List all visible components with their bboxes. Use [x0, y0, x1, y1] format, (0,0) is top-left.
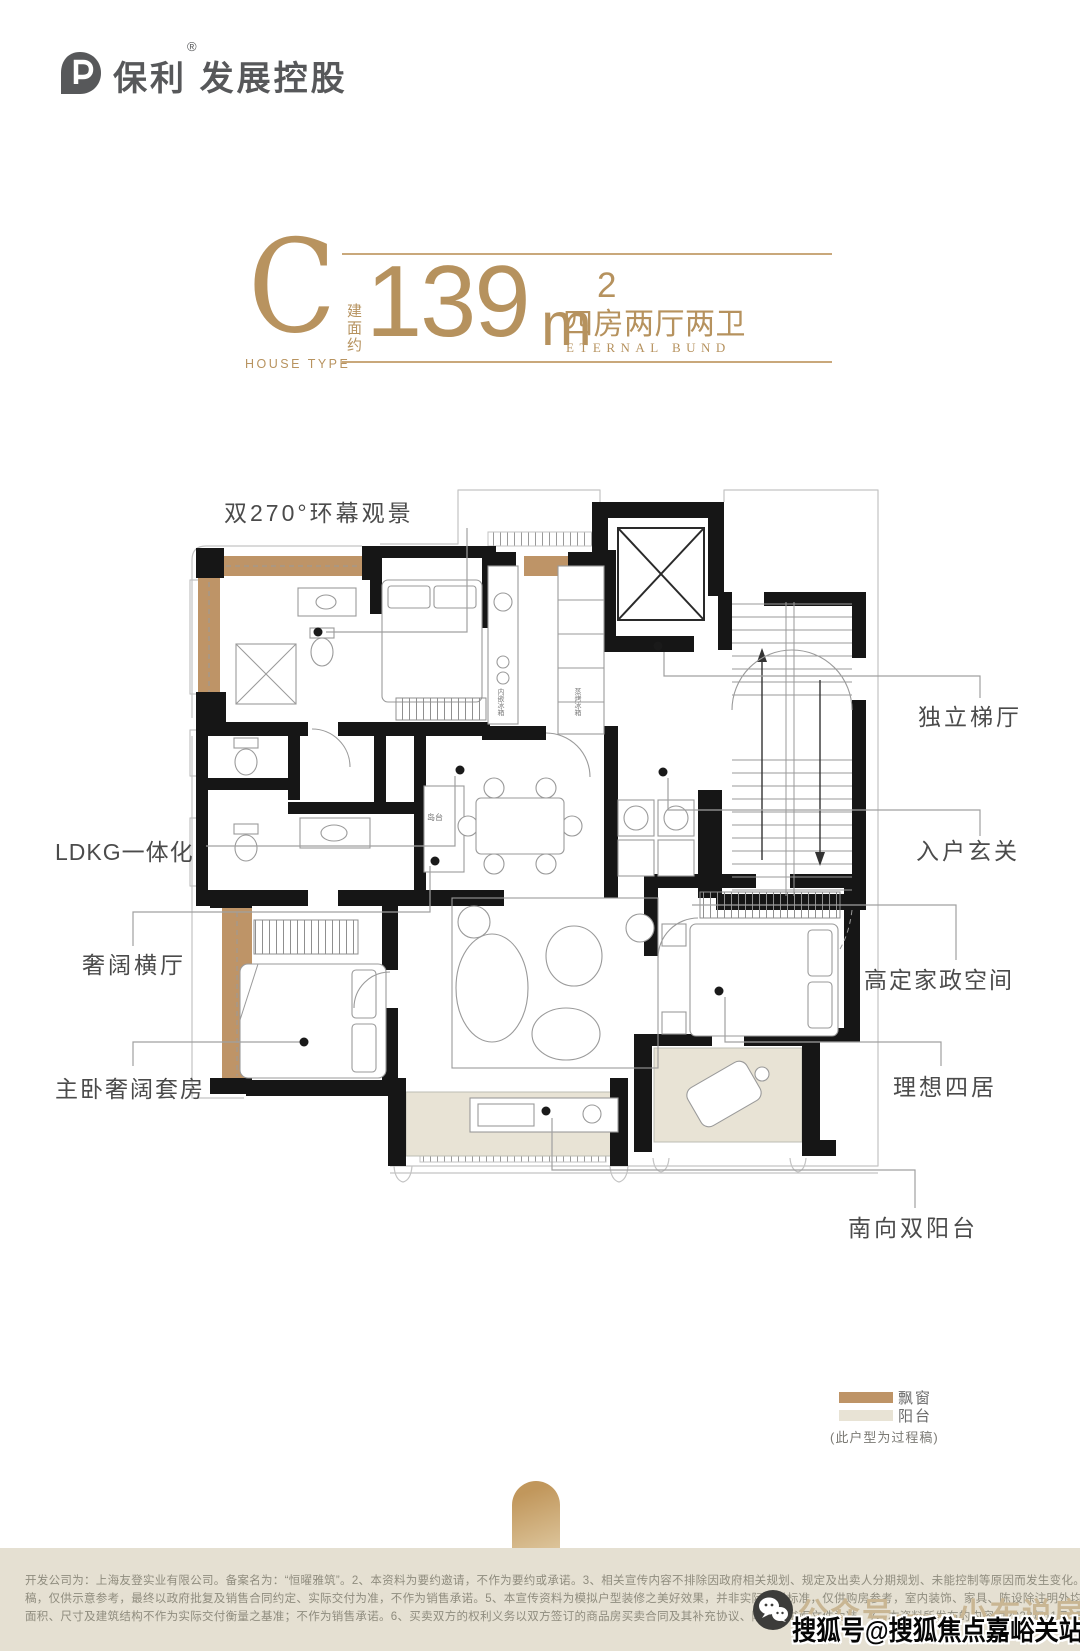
layout-description-en: ETERNAL BUND	[566, 340, 731, 356]
registered-mark-icon: ®	[187, 39, 200, 54]
house-type-label: HOUSE TYPE	[245, 357, 350, 371]
dining	[424, 778, 582, 874]
area-number: 139	[366, 256, 529, 349]
housekeeping-room	[618, 800, 694, 876]
legend-label-balcony: 阳台	[898, 1405, 932, 1426]
layout-description-cn: 四房两厅两卫	[563, 299, 746, 343]
living-room	[452, 898, 658, 1068]
legend-swatch-balcony	[839, 1410, 893, 1421]
master-suite	[240, 920, 390, 1078]
callout-panorama-view: 双270°环幕观景	[224, 494, 414, 528]
callout-housekeeping: 高定家政空间	[864, 961, 1014, 995]
brand-logo: 保利®发展控股	[57, 50, 348, 101]
legend-swatch-bay-window	[839, 1392, 893, 1403]
plan-label-appliance-left: 内嵌冰箱	[495, 688, 505, 716]
callout-foyer: 入户玄关	[916, 832, 1020, 866]
callout-ldkg: LDKG一体化	[55, 833, 194, 867]
title-rule-bottom	[342, 361, 832, 363]
house-type-letter: C	[248, 234, 336, 343]
poster-page: 保利®发展控股 C HOUSE TYPE 建面约 139 m 2 四房两厅两卫 …	[0, 0, 1080, 1651]
plan-label-island: 岛台	[427, 812, 443, 823]
brand-name: 保利®发展控股	[113, 51, 348, 100]
kitchen	[488, 566, 604, 777]
elevator-shaft	[618, 528, 704, 620]
right-bedroom	[658, 892, 840, 1036]
poly-logo-icon	[57, 50, 103, 101]
bathrooms	[234, 729, 370, 861]
furniture-top-left	[236, 580, 486, 720]
disclaimer-line-1: 开发公司为：上海友登实业有限公司。备案名为：“恒曜雅筑”。2、本资料为要约邀请，…	[25, 1572, 1080, 1588]
callout-lift-lobby: 独立梯厅	[918, 698, 1022, 732]
callout-master-suite: 主卧奢阔套房	[55, 1070, 205, 1104]
callout-four-bedrooms: 理想四居	[893, 1068, 997, 1102]
callout-south-balcony: 南向双阳台	[848, 1209, 978, 1243]
legend-note: (此户型为过程稿)	[830, 1427, 939, 1446]
plan-label-appliance-right: 蒸烤冰箱	[572, 688, 582, 716]
area-prefix: 建面约	[345, 303, 362, 354]
wechat-icon	[752, 1589, 794, 1636]
arch-logo	[512, 1481, 560, 1548]
sohu-watermark: 搜狐号@搜狐焦点嘉峪关站	[792, 1609, 1080, 1648]
callout-grand-hall: 奢阔横厅	[82, 946, 186, 980]
